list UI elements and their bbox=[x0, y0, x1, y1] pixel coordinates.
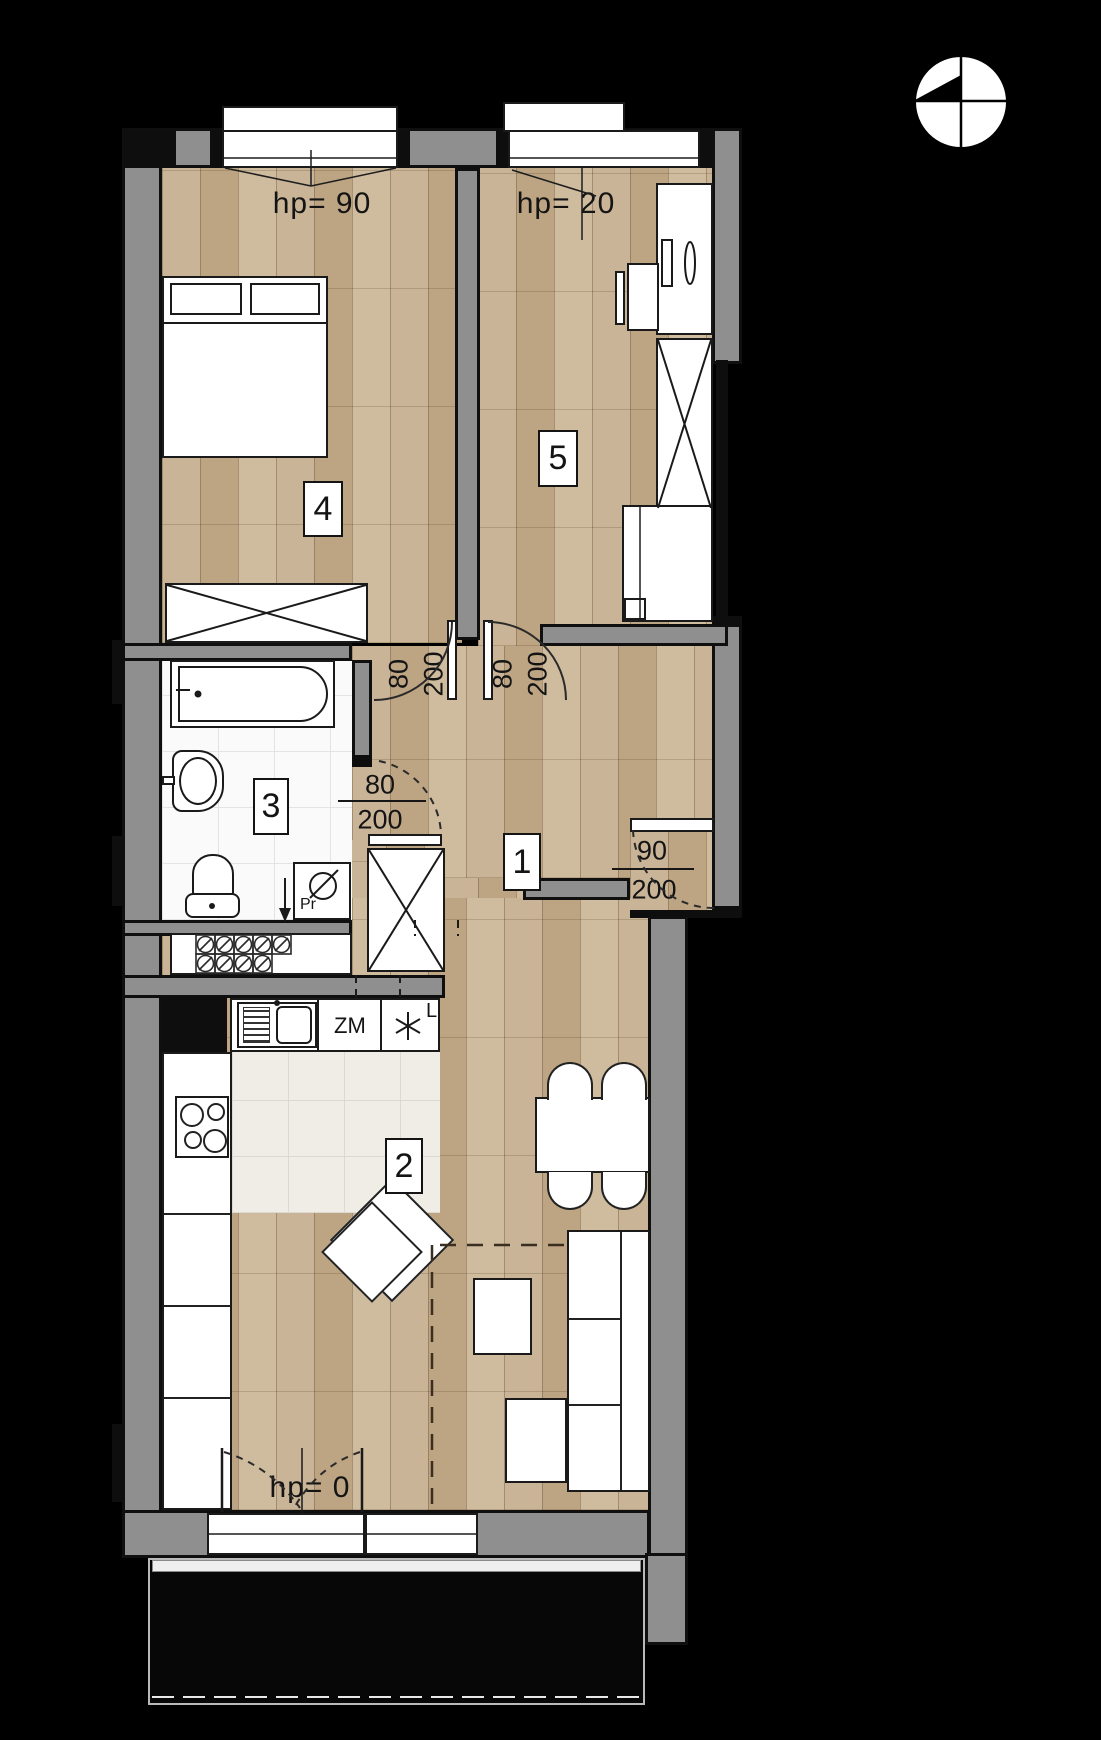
floor-plan-canvas: 1 2 3 4 5 hp= 90 hp= 20 hp= 0 80 200 80 … bbox=[0, 0, 1101, 1740]
window-sill-height-label: hp= 20 bbox=[517, 187, 616, 221]
bathroom-door-leaf bbox=[368, 834, 442, 846]
sofa-cushion-line bbox=[569, 1404, 620, 1406]
window-sill-height-label: hp= 90 bbox=[273, 187, 372, 221]
wardrobe-room5 bbox=[656, 338, 713, 510]
pillow bbox=[170, 283, 242, 315]
sofa-end-table bbox=[505, 1398, 567, 1483]
wall-right-upper bbox=[712, 128, 742, 364]
bathtub-basin bbox=[178, 666, 328, 722]
balcony-threshold bbox=[152, 1560, 641, 1572]
wall-room5-bottom bbox=[540, 624, 728, 646]
balcony-window-room5 bbox=[508, 130, 700, 168]
sink-basin bbox=[276, 1006, 312, 1044]
wall-right-party bbox=[716, 360, 728, 628]
desk-chair-seat bbox=[627, 263, 659, 331]
balcony-door-opening bbox=[207, 1513, 365, 1555]
wall-bathroom-right bbox=[352, 660, 372, 765]
door-width-entrance: 90 bbox=[637, 836, 667, 867]
counter-joint bbox=[164, 1305, 230, 1307]
door-width-room4: 80 bbox=[384, 659, 415, 689]
washbasin-bowl bbox=[179, 757, 217, 805]
wall-pier bbox=[210, 130, 222, 168]
door-width-bathroom: 80 bbox=[365, 770, 395, 801]
wall-pier bbox=[112, 836, 124, 906]
room-label-3: 3 bbox=[253, 778, 289, 835]
counter-joint bbox=[164, 1213, 230, 1215]
kitchen-shaft-block bbox=[162, 997, 227, 1052]
door-width-room5: 80 bbox=[488, 659, 519, 689]
room-number: 4 bbox=[314, 490, 333, 529]
balcony-side-wall bbox=[645, 1553, 688, 1645]
counter-divider bbox=[317, 998, 319, 1052]
door-height-room4: 200 bbox=[419, 651, 450, 696]
counter-joint bbox=[164, 1397, 230, 1399]
pillow bbox=[624, 598, 646, 620]
wall-bathroom-top bbox=[122, 643, 352, 661]
coffee-table bbox=[473, 1278, 532, 1355]
room-number: 2 bbox=[395, 1147, 414, 1186]
room-label-1: 1 bbox=[503, 833, 541, 891]
north-arrow-icon bbox=[913, 55, 1008, 149]
toilet-tank bbox=[185, 893, 240, 918]
room-number: 3 bbox=[262, 787, 281, 826]
dishwasher-label: ZM bbox=[334, 1013, 366, 1039]
wall-cap bbox=[712, 616, 742, 626]
door-height-bathroom: 200 bbox=[357, 805, 402, 836]
room-label-2: 2 bbox=[385, 1138, 423, 1194]
desk-chair-back bbox=[615, 271, 625, 325]
wall-pier bbox=[122, 130, 176, 168]
wall-pier bbox=[398, 130, 410, 168]
counter-divider bbox=[380, 998, 382, 1052]
wall-right-hall bbox=[712, 624, 742, 916]
entrance-door-leaf bbox=[630, 818, 714, 832]
room-label-5: 5 bbox=[538, 430, 578, 487]
wall-pier bbox=[112, 640, 124, 704]
sofa bbox=[567, 1230, 650, 1492]
window-living-room bbox=[365, 1513, 478, 1555]
wall-room4-room5-divider bbox=[455, 168, 480, 640]
wall-cap bbox=[712, 906, 742, 916]
wall-pier bbox=[496, 130, 508, 168]
dining-chair bbox=[547, 1062, 593, 1100]
wall-pier bbox=[112, 1424, 124, 1502]
balcony-door-height-label: hp= 0 bbox=[270, 1471, 351, 1505]
sofa-back-line bbox=[620, 1232, 622, 1490]
wall-cap bbox=[352, 755, 372, 767]
dining-chair bbox=[601, 1062, 647, 1100]
dining-table bbox=[535, 1097, 650, 1173]
sofa-cushion-line bbox=[569, 1318, 620, 1320]
wardrobe-room4 bbox=[165, 583, 368, 643]
room-number: 5 bbox=[549, 439, 568, 478]
window-room4 bbox=[222, 130, 398, 168]
wall-pier bbox=[700, 130, 712, 168]
washing-machine-label: Pr bbox=[300, 896, 316, 914]
wall-left bbox=[122, 128, 162, 1558]
pillow bbox=[250, 283, 320, 315]
toilet-bowl bbox=[192, 854, 234, 898]
fridge-label: L bbox=[426, 1000, 437, 1023]
door-height-room5: 200 bbox=[523, 651, 554, 696]
bed-fold-line bbox=[164, 322, 326, 324]
dimension-fraction-line bbox=[338, 800, 426, 802]
sink-drainer bbox=[243, 1007, 270, 1043]
dimension-fraction-line bbox=[612, 868, 694, 870]
hall-closet bbox=[367, 848, 445, 972]
window-sill-room5 bbox=[503, 102, 625, 132]
room-label-4: 4 bbox=[303, 481, 343, 537]
vent-shaft-box bbox=[170, 933, 352, 975]
desk-room5 bbox=[656, 183, 713, 335]
wall-kitchen-top bbox=[122, 975, 445, 998]
wall-right-living bbox=[648, 916, 688, 1558]
balcony bbox=[148, 1558, 645, 1705]
window-sill-room4 bbox=[222, 106, 398, 132]
washbasin-faucet bbox=[162, 776, 175, 785]
stove bbox=[175, 1096, 229, 1158]
room-number: 1 bbox=[513, 843, 532, 882]
door-height-entrance: 200 bbox=[631, 875, 676, 906]
